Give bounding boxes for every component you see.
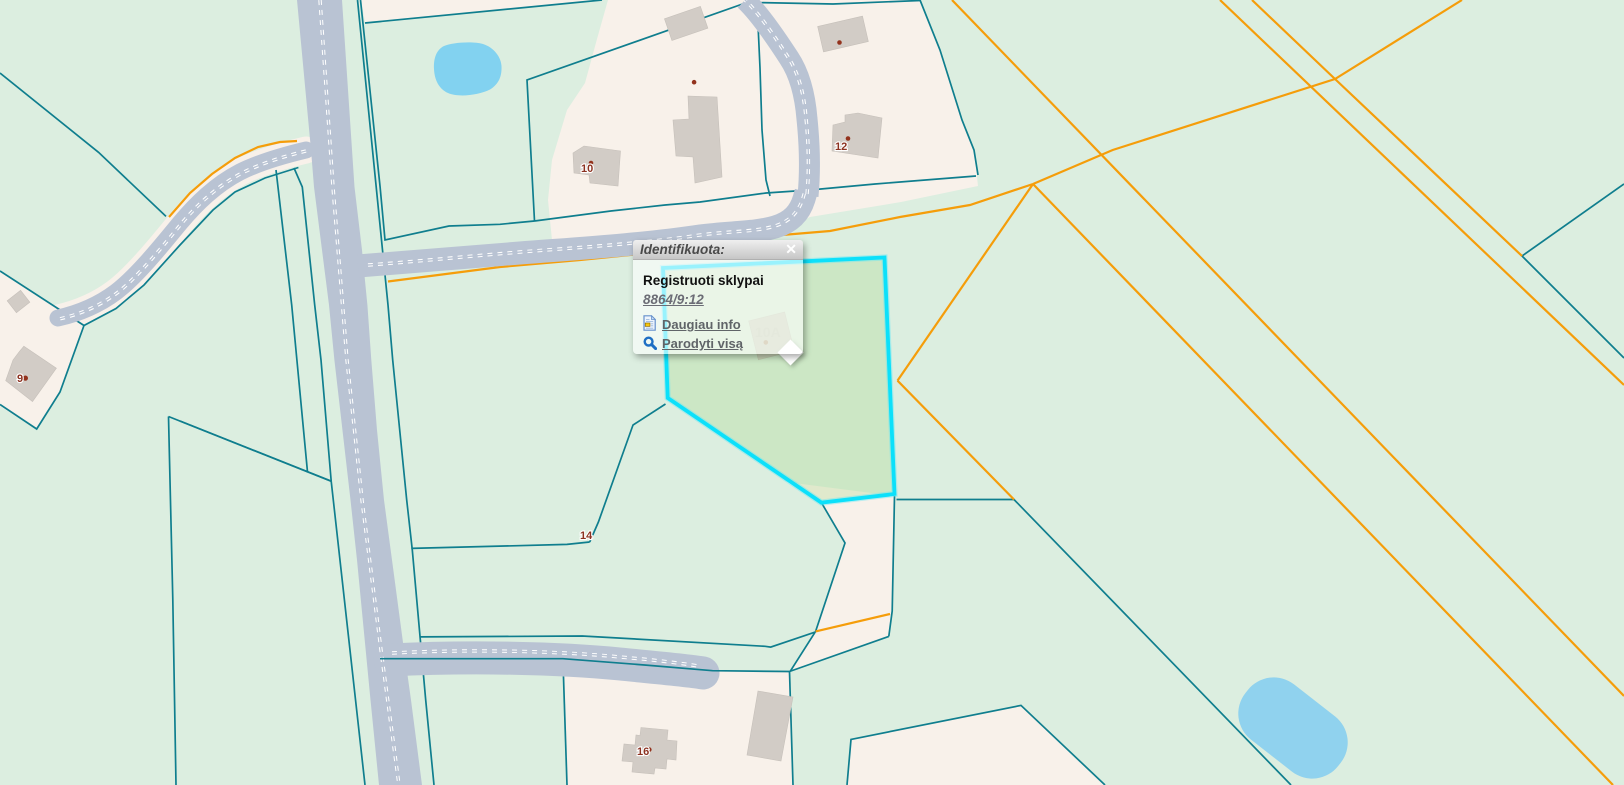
- svg-text:9: 9: [17, 373, 23, 385]
- svg-text:16: 16: [637, 746, 649, 758]
- svg-text:12: 12: [835, 141, 847, 153]
- svg-text:14: 14: [580, 530, 593, 542]
- svg-text:10: 10: [581, 163, 593, 175]
